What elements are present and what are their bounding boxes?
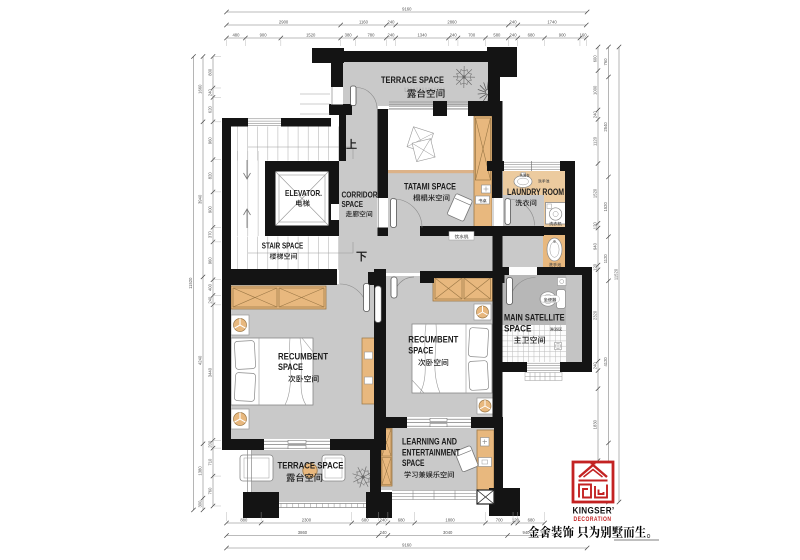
svg-text:400: 400 xyxy=(208,283,213,291)
svg-text:3040: 3040 xyxy=(443,530,453,535)
svg-text:1000: 1000 xyxy=(593,85,598,95)
svg-text:LEARNING AND: LEARNING AND xyxy=(402,437,457,447)
svg-text:1800: 1800 xyxy=(445,518,455,523)
svg-text:MAIN SATELLITE: MAIN SATELLITE xyxy=(504,312,565,323)
svg-text:240: 240 xyxy=(593,111,598,119)
svg-text:SPACE: SPACE xyxy=(342,199,364,209)
svg-text:240: 240 xyxy=(208,296,213,304)
svg-text:120: 120 xyxy=(593,222,598,230)
svg-text:300: 300 xyxy=(198,500,203,508)
svg-text:880: 880 xyxy=(240,518,248,523)
svg-text:900: 900 xyxy=(559,33,567,38)
svg-text:1830: 1830 xyxy=(593,419,598,429)
svg-text:SPACE: SPACE xyxy=(504,323,532,334)
svg-text:160: 160 xyxy=(580,33,588,38)
svg-text:SPACE: SPACE xyxy=(402,458,425,468)
svg-text:11520: 11520 xyxy=(188,277,193,289)
svg-text:600: 600 xyxy=(593,55,598,63)
svg-text:1340: 1340 xyxy=(417,33,427,38)
svg-text:1120: 1120 xyxy=(603,254,608,264)
svg-text:580: 580 xyxy=(493,33,501,38)
svg-text:780: 780 xyxy=(367,33,375,38)
svg-text:3440: 3440 xyxy=(208,367,213,377)
svg-text:2900: 2900 xyxy=(279,20,289,25)
svg-text:680: 680 xyxy=(528,518,536,523)
svg-text:240: 240 xyxy=(510,33,518,38)
svg-text:TERRACE SPACE: TERRACE SPACE xyxy=(381,75,444,86)
svg-text:ENTERTAINMENT: ENTERTAINMENT xyxy=(402,447,460,457)
svg-text:240: 240 xyxy=(380,518,388,523)
svg-text:240: 240 xyxy=(380,530,388,535)
svg-text:11520: 11520 xyxy=(614,268,619,280)
svg-text:480: 480 xyxy=(232,33,240,38)
svg-text:120: 120 xyxy=(593,263,598,271)
svg-text:1660: 1660 xyxy=(198,84,203,94)
svg-text:2320: 2320 xyxy=(593,310,598,320)
svg-text:3940: 3940 xyxy=(198,194,203,204)
svg-text:960: 960 xyxy=(208,257,213,265)
svg-text:700: 700 xyxy=(468,33,476,38)
svg-text:370: 370 xyxy=(208,230,213,238)
svg-text:KINGSER’: KINGSER’ xyxy=(573,505,615,516)
svg-text:4120: 4120 xyxy=(603,357,608,367)
svg-text:1520: 1520 xyxy=(603,201,608,211)
svg-text:9160: 9160 xyxy=(402,7,412,12)
svg-text:680: 680 xyxy=(528,33,536,38)
svg-text:9160: 9160 xyxy=(402,543,412,548)
svg-text:760: 760 xyxy=(208,487,213,495)
svg-text:1380: 1380 xyxy=(198,466,203,476)
svg-text:900: 900 xyxy=(208,205,213,213)
svg-text:240: 240 xyxy=(593,362,598,370)
svg-text:1520: 1520 xyxy=(593,188,598,198)
svg-text:940: 940 xyxy=(593,242,598,250)
svg-text:1520: 1520 xyxy=(306,33,316,38)
svg-text:SPACE: SPACE xyxy=(408,345,433,356)
svg-text:TERRACE SPACE: TERRACE SPACE xyxy=(278,461,344,472)
svg-text:760: 760 xyxy=(603,58,608,66)
svg-text:DECORATION: DECORATION xyxy=(574,516,612,523)
svg-text:STAIR SPACE: STAIR SPACE xyxy=(262,240,304,250)
svg-text:RECUMBENT: RECUMBENT xyxy=(278,351,328,362)
svg-text:2300: 2300 xyxy=(302,518,312,523)
svg-text:900: 900 xyxy=(260,33,268,38)
svg-text:TATAMI SPACE: TATAMI SPACE xyxy=(404,182,456,192)
svg-text:820: 820 xyxy=(208,172,213,180)
svg-text:CORRIDOR: CORRIDOR xyxy=(342,190,378,200)
svg-text:2540: 2540 xyxy=(603,122,608,132)
svg-text:2860: 2860 xyxy=(447,20,457,25)
svg-text:620: 620 xyxy=(208,105,213,113)
svg-text:4240: 4240 xyxy=(198,355,203,365)
svg-text:SPACE: SPACE xyxy=(278,361,303,372)
svg-text:680: 680 xyxy=(398,518,406,523)
svg-text:LAUNDRY ROOM: LAUNDRY ROOM xyxy=(507,187,564,197)
svg-text:960: 960 xyxy=(208,137,213,145)
svg-text:240: 240 xyxy=(388,33,396,38)
svg-text:240: 240 xyxy=(208,89,213,97)
svg-text:800: 800 xyxy=(208,68,213,76)
svg-text:200: 200 xyxy=(208,440,213,448)
svg-text:240: 240 xyxy=(510,20,518,25)
svg-text:240: 240 xyxy=(450,33,458,38)
svg-text:940: 940 xyxy=(523,530,531,535)
svg-text:680: 680 xyxy=(362,518,370,523)
svg-text:710: 710 xyxy=(208,458,213,466)
svg-text:RECUMBENT: RECUMBENT xyxy=(408,334,458,345)
svg-text:700: 700 xyxy=(496,518,504,523)
svg-text:1160: 1160 xyxy=(359,20,369,25)
svg-text:3860: 3860 xyxy=(298,530,308,535)
svg-text:240: 240 xyxy=(388,20,396,25)
svg-text:380: 380 xyxy=(345,33,353,38)
svg-text:ELEVATOR.: ELEVATOR. xyxy=(285,189,322,198)
svg-text:1120: 1120 xyxy=(593,136,598,146)
svg-text:1740: 1740 xyxy=(547,20,557,25)
